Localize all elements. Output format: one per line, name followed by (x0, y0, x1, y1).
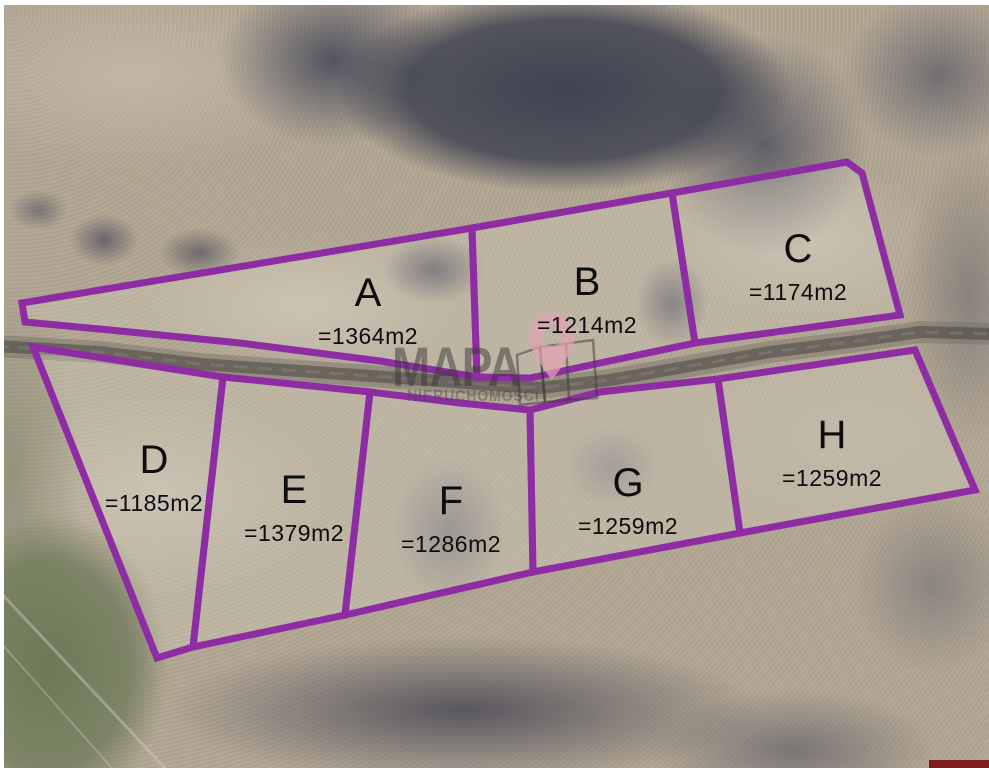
plot-polygon-c (672, 162, 900, 343)
plot-polygon-g (530, 379, 740, 572)
field-track-line (0, 642, 112, 768)
plot-boundaries (22, 162, 975, 658)
aerial-plot-map-image: MAPA NIERUCHOMOŚCI A =1364m2 B =1214m2 C… (0, 0, 989, 768)
page-border-left (0, 0, 4, 768)
plot-polygon-h (718, 350, 975, 533)
corner-red-bar (929, 760, 989, 768)
page-border-top (0, 0, 989, 5)
plot-overlay-svg: MAPA NIERUCHOMOŚCI (0, 0, 989, 768)
plot-polygon-f (345, 392, 533, 615)
